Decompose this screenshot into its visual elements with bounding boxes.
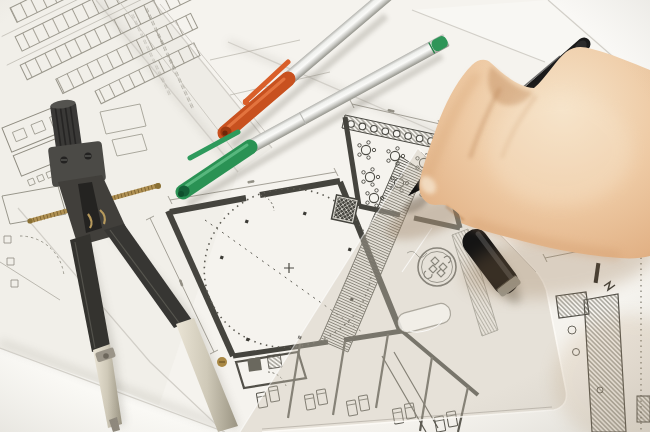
scene-canvas [0, 0, 650, 432]
vignette-overlay [0, 0, 650, 432]
desk-photo [0, 0, 650, 432]
